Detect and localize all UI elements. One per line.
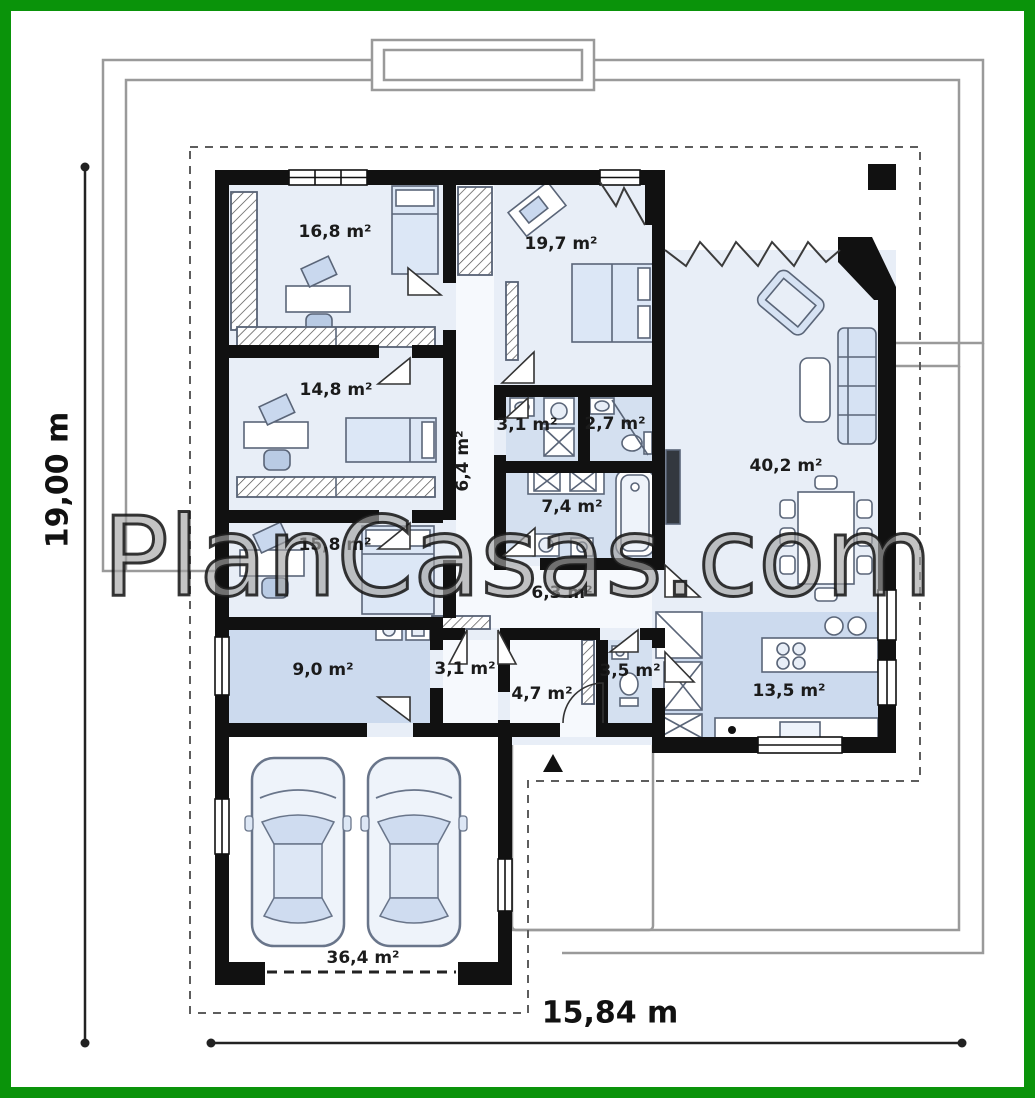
room-label-garage-36-4: 36,4 m² bbox=[326, 948, 399, 968]
closet-icon bbox=[237, 327, 435, 347]
room-label-bath-7-4: 7,4 m² bbox=[541, 497, 602, 517]
room-label-wc-3-5: 3,5 m² bbox=[599, 661, 660, 681]
sofa-icon bbox=[838, 328, 876, 444]
room-label-hall-6-3: 6,3 m² bbox=[531, 583, 592, 603]
radiator-icon bbox=[582, 640, 594, 704]
window bbox=[600, 170, 640, 185]
sink-icon bbox=[590, 398, 614, 414]
room-label-living-40-2: 40,2 m² bbox=[749, 456, 822, 476]
room-label-hall-6-4: 6,4 m² bbox=[453, 430, 473, 491]
room-label-utility-9-0: 9,0 m² bbox=[292, 660, 353, 680]
room-label-wc-3-1: 3,1 m² bbox=[496, 415, 557, 435]
bed-icon bbox=[392, 186, 438, 274]
coffee-table-icon bbox=[800, 358, 830, 422]
room-label-bedroom-19-7: 19,7 m² bbox=[524, 234, 597, 254]
wardrobe-icon bbox=[231, 192, 257, 330]
porch-outline bbox=[512, 729, 653, 930]
window bbox=[498, 859, 512, 911]
bed-icon bbox=[346, 418, 436, 462]
wardrobe-icon bbox=[458, 187, 492, 275]
window bbox=[878, 590, 896, 640]
dimension-height: 19,00 m bbox=[41, 412, 76, 549]
floor-plan-drawing bbox=[0, 0, 1035, 1098]
window bbox=[215, 799, 229, 854]
room-label-bath-2-7: 2,7 m² bbox=[584, 414, 645, 434]
dimension-width: 15,84 m bbox=[542, 996, 679, 1031]
window bbox=[289, 170, 367, 185]
room-label-bedroom-15-8: 15,8 m² bbox=[298, 535, 371, 555]
floor-plan-page: 16,8 m² 19,7 m² 14,8 m² 3,1 m² 2,7 m² 6,… bbox=[0, 0, 1035, 1098]
wardrobe-icon bbox=[506, 282, 518, 360]
window bbox=[878, 660, 896, 705]
room-label-bedroom-14-8: 14,8 m² bbox=[299, 380, 372, 400]
tv-unit-icon bbox=[666, 450, 680, 524]
room-label-office-16-8: 16,8 m² bbox=[298, 222, 371, 242]
washer-icon bbox=[533, 534, 559, 556]
bathtub-icon bbox=[616, 470, 654, 556]
entrance-arrow-icon bbox=[543, 754, 563, 772]
toilet-icon bbox=[571, 538, 593, 556]
closet-icon bbox=[237, 477, 435, 497]
window bbox=[215, 637, 229, 695]
window bbox=[758, 737, 842, 753]
room-label-kitchen-13-5: 13,5 m² bbox=[752, 681, 825, 701]
double-bed-icon bbox=[572, 264, 654, 342]
room-label-room-3-1: 3,1 m² bbox=[434, 659, 495, 679]
room-label-corridor-4-7: 4,7 m² bbox=[511, 684, 572, 704]
